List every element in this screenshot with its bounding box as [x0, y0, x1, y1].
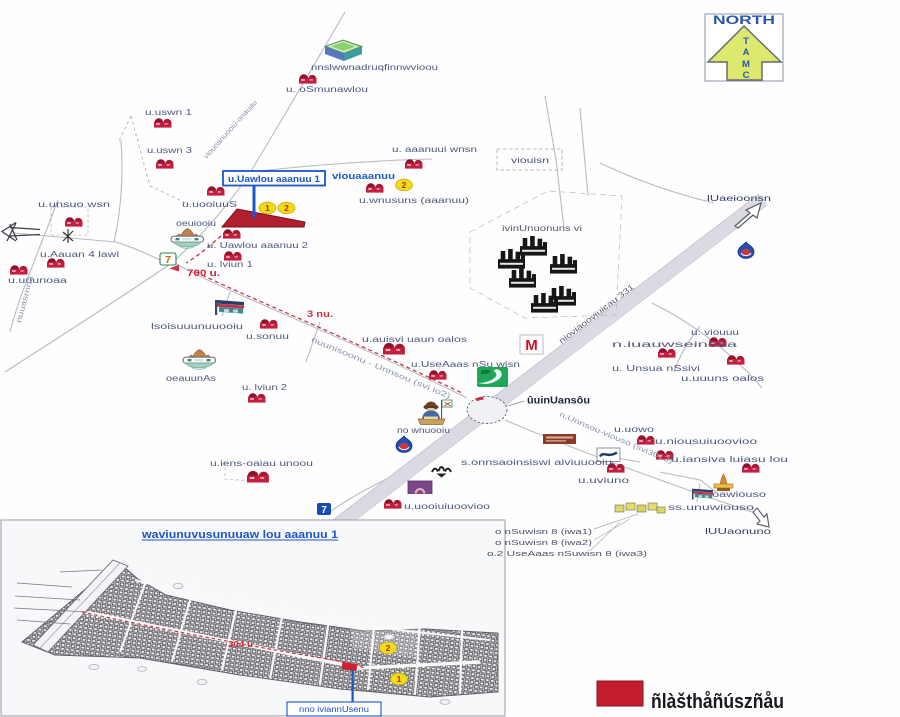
svg-text:oeauunAs: oeauunAs	[166, 374, 216, 383]
svg-text:u.uooiuiuoovioo: u.uooiuiuoovioo	[404, 502, 491, 511]
svg-text:u.unsuo wsn: u.unsuo wsn	[38, 200, 110, 209]
svg-text:u.iens-oaiau unoou: u.iens-oaiau unoou	[210, 459, 313, 468]
svg-text:u. oSmunawlou: u. oSmunawlou	[286, 85, 368, 94]
svg-text:lsoisuuunuuooiu: lsoisuuunuuooiu	[151, 322, 243, 331]
svg-text:u.iansiva luiasu lou: u.iansiva luiasu lou	[671, 455, 788, 464]
svg-text:M: M	[742, 59, 750, 70]
svg-text:ñlàšthåñúszñåu: ñlàšthåñúszñåu	[651, 690, 784, 713]
svg-text:lUaeioonsn: lUaeioonsn	[707, 193, 771, 203]
svg-text:C: C	[743, 70, 750, 81]
svg-text:u.auisvi uaun oalos: u.auisvi uaun oalos	[362, 335, 467, 344]
svg-text:u.uuuns oalos: u.uuuns oalos	[681, 374, 764, 383]
svg-text:u. aaanuui wnsn: u. aaanuui wnsn	[392, 145, 477, 154]
svg-text:lUUaonuno: lUUaonuno	[705, 526, 771, 536]
svg-text:u.Uawlou aaanuu 1: u.Uawlou aaanuu 1	[228, 174, 320, 184]
svg-text:ivinUnuonuns vi: ivinUnuonuns vi	[502, 223, 582, 233]
svg-text:u.uowo: u.uowo	[614, 425, 655, 434]
svg-text:no wnuooiu: no wnuooiu	[397, 426, 450, 435]
svg-text:o nSuwisn 8 (iwa1): o nSuwisn 8 (iwa1)	[495, 527, 593, 536]
svg-text:u.uuunoaa: u.uuunoaa	[8, 276, 68, 285]
svg-text:u. Unsua nSsivi: u. Unsua nSsivi	[612, 364, 700, 373]
svg-text:700 u.: 700 u.	[187, 268, 220, 278]
svg-text:u.uviuno: u.uviuno	[578, 476, 630, 485]
svg-text:u.uswn 3: u.uswn 3	[147, 146, 193, 155]
svg-text:oeuiooiu: oeuiooiu	[176, 219, 216, 228]
svg-text:s.onnsaoinsiswi aiviuuooiu: s.onnsaoinsiswi aiviuuooiu	[461, 458, 612, 467]
svg-text:u.uswn 1: u.uswn 1	[145, 108, 193, 117]
svg-text:u.Aauan 4 lawi: u.Aauan 4 lawi	[40, 250, 119, 259]
svg-text:n.iuauwseinosa: n.iuauwseinosa	[612, 340, 738, 349]
svg-text:u.uooiuuS: u.uooiuuS	[182, 200, 237, 209]
svg-text:A: A	[743, 47, 750, 58]
svg-text:u.wnusuns (aaanuu): u.wnusuns (aaanuu)	[359, 196, 469, 205]
svg-text:u.sonuu: u.sonuu	[246, 332, 289, 341]
svg-text:nnslwwnadruqfinnwvioou: nnslwwnadruqfinnwvioou	[311, 63, 438, 72]
svg-text:o.2 UseAaas nSuwisn 8 (iwa3): o.2 UseAaas nSuwisn 8 (iwa3)	[487, 549, 648, 558]
svg-text:u.UseAaas nSu wisn: u.UseAaas nSu wisn	[411, 360, 520, 369]
svg-text:ûuinUansôu: ûuinUansôu	[527, 396, 590, 407]
svg-text:u. viouuu: u. viouuu	[691, 328, 739, 337]
svg-text:u.niousuiuoovioo: u.niousuiuoovioo	[655, 437, 758, 446]
svg-text:u. Uawlou aaanuu 2: u. Uawlou aaanuu 2	[207, 241, 309, 250]
svg-text:oawiouso: oawiouso	[712, 490, 767, 499]
svg-text:o nSuwisn 8 (iwa2): o nSuwisn 8 (iwa2)	[495, 538, 593, 547]
svg-text:304 u: 304 u	[228, 640, 253, 649]
svg-text:3 nu.: 3 nu.	[307, 309, 333, 320]
svg-text:waviunuvusunuuaw lou aaanuu 1: waviunuvusunuuaw lou aaanuu 1	[141, 529, 338, 541]
svg-text:nno iviannUsenu: nno iviannUsenu	[299, 705, 369, 714]
svg-text:u. lviun 2: u. lviun 2	[242, 383, 288, 392]
svg-text:T: T	[743, 36, 749, 47]
svg-text:ss.unuwiouso: ss.unuwiouso	[668, 503, 755, 512]
svg-text:viouisn: viouisn	[511, 156, 549, 165]
svg-text:viouaaanuu: viouaaanuu	[332, 171, 395, 181]
